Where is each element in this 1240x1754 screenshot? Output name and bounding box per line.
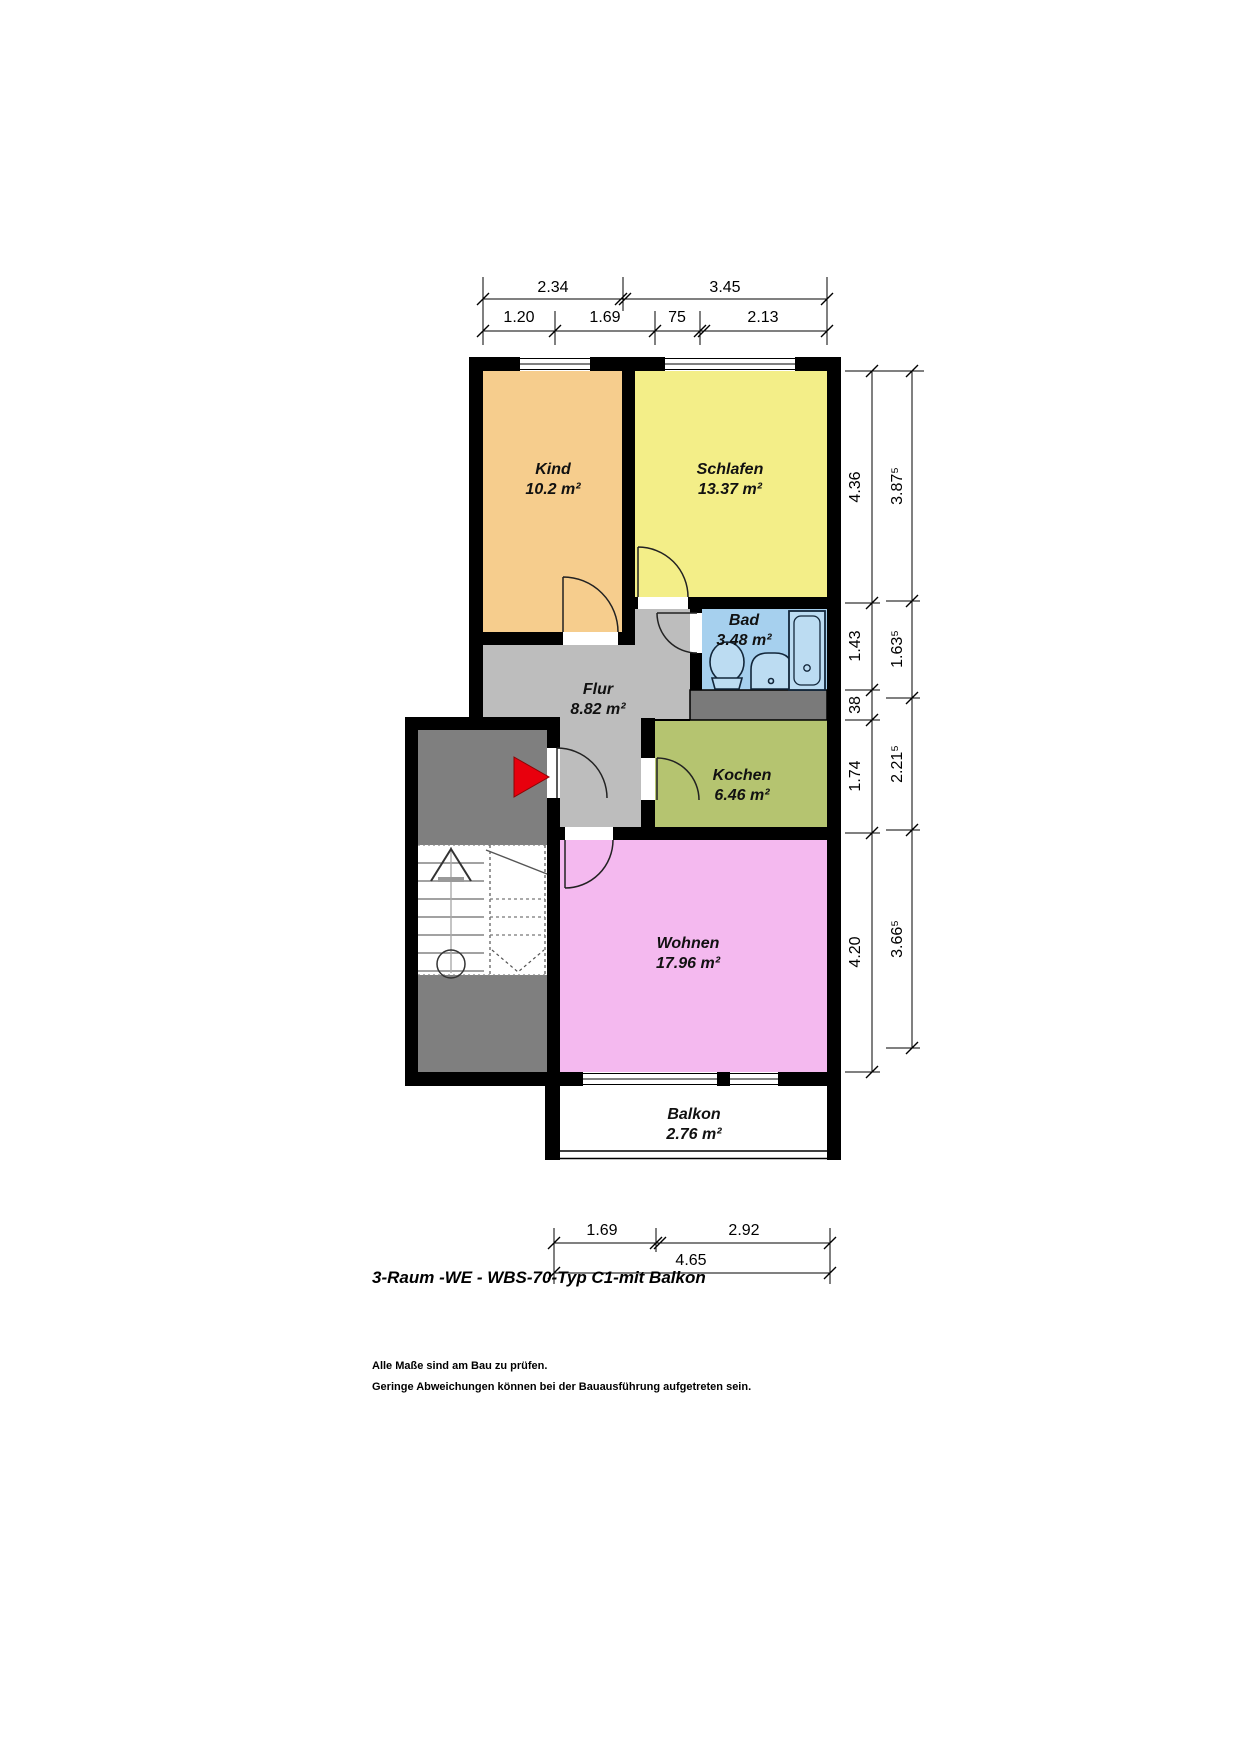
dim-top: 1.69	[589, 310, 620, 326]
dim-right: 4.20	[848, 936, 864, 967]
room-area: 17.96 m²	[656, 954, 720, 974]
room-area: 2.76 m²	[666, 1125, 721, 1145]
dim-bottom: 2.92	[728, 1223, 759, 1239]
room-name: Kind	[525, 460, 580, 480]
room-flur-fill	[635, 609, 690, 645]
floorplan-page: Kind 10.2 m² Schlafen 13.37 m² Bad 3.48 …	[0, 0, 1240, 1754]
note-line-1: Alle Maße sind am Bau zu prüfen.	[372, 1360, 547, 1372]
dim-right: 38	[848, 696, 864, 714]
dim-right: 1.43	[848, 630, 864, 661]
dim-top: 2.13	[747, 310, 778, 326]
room-name: Bad	[716, 611, 771, 631]
room-label-kochen: Kochen 6.46 m²	[713, 766, 772, 806]
dim-right: 1.74	[848, 760, 864, 791]
dim-right: 2.21⁵	[890, 745, 906, 783]
shaft-fill	[690, 690, 827, 720]
room-label-flur: Flur 8.82 m²	[570, 680, 625, 720]
stairs-icon	[418, 845, 547, 978]
room-name: Flur	[570, 680, 625, 700]
plan-title: 3-Raum -WE - WBS-70-Typ C1-mit Balkon	[372, 1268, 706, 1288]
room-area: 10.2 m²	[525, 480, 580, 500]
room-area: 3.48 m²	[716, 631, 771, 651]
dim-top: 1.20	[503, 310, 534, 326]
room-name: Wohnen	[656, 934, 720, 954]
room-label-wohnen: Wohnen 17.96 m²	[656, 934, 720, 974]
room-area: 8.82 m²	[570, 700, 625, 720]
dim-right: 3.66⁵	[890, 920, 906, 958]
dim-right: 1.63⁵	[890, 630, 906, 668]
window-wohnen	[730, 1072, 778, 1086]
dim-bottom: 1.69	[586, 1223, 617, 1239]
room-name: Schlafen	[697, 460, 764, 480]
window-wohnen-balcony-door	[583, 1072, 717, 1086]
window-kind	[520, 357, 590, 371]
stairwell-lower-fill	[418, 975, 547, 1072]
note-line-2: Geringe Abweichungen können bei der Baua…	[372, 1381, 751, 1393]
room-area: 13.37 m²	[697, 480, 764, 500]
dim-right: 3.87⁵	[890, 467, 906, 505]
dim-right: 4.36	[848, 471, 864, 502]
bathtub-icon	[789, 611, 825, 690]
floorplan-drawing	[0, 0, 1240, 1754]
room-name: Balkon	[666, 1105, 721, 1125]
dim-top: 2.34	[537, 280, 568, 296]
dim-top: 3.45	[709, 280, 740, 296]
room-label-kind: Kind 10.2 m²	[525, 460, 580, 500]
room-area: 6.46 m²	[713, 786, 772, 806]
room-label-balkon: Balkon 2.76 m²	[666, 1105, 721, 1145]
sink-icon	[751, 653, 792, 689]
window-schlafen	[665, 357, 795, 371]
dim-top: 75	[668, 310, 686, 326]
room-label-schlafen: Schlafen 13.37 m²	[697, 460, 764, 500]
balcony-railing	[545, 1151, 841, 1159]
room-label-bad: Bad 3.48 m²	[716, 611, 771, 651]
room-name: Kochen	[713, 766, 772, 786]
dim-bottom: 4.65	[675, 1253, 706, 1269]
